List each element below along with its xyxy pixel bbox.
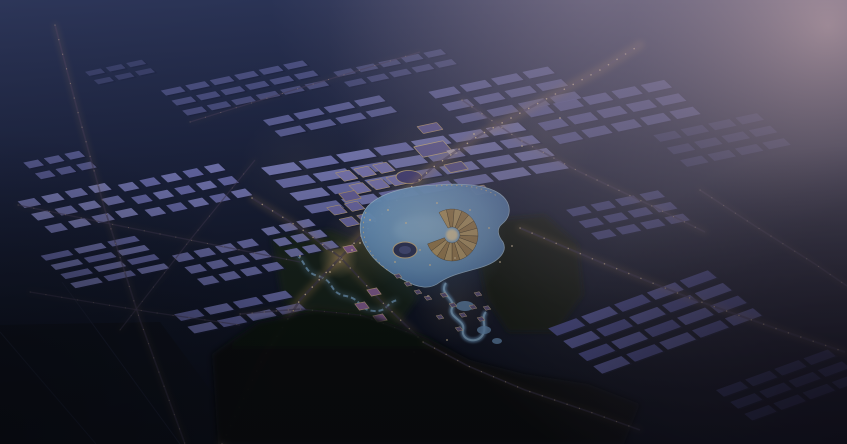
bottom-vignette <box>0 0 847 444</box>
aerial-city-night-rendering <box>0 0 847 444</box>
masterplan-render-canvas <box>0 0 847 444</box>
